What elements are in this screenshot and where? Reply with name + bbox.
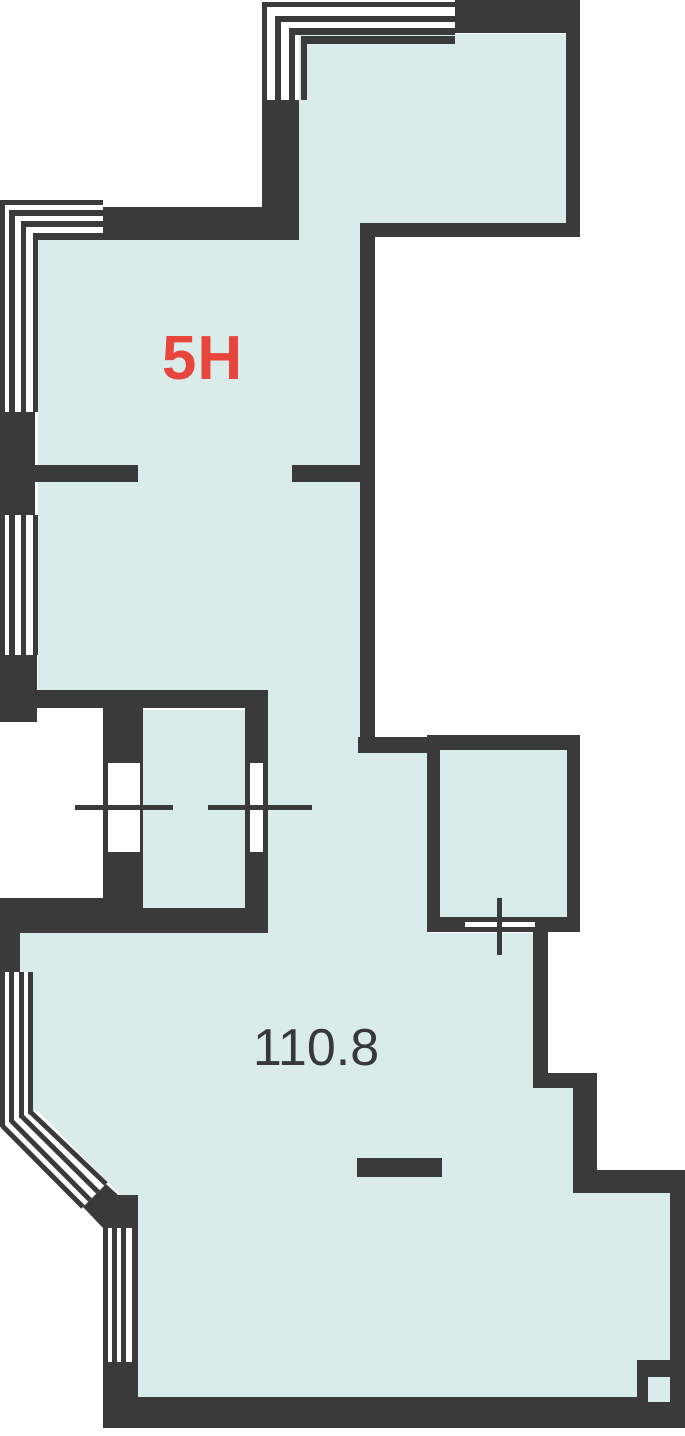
window-line — [275, 16, 455, 22]
window-line — [112, 1225, 117, 1362]
wall-top-room-top — [455, 0, 580, 33]
main-room-floor-sliver — [20, 933, 38, 972]
window-left-middle — [0, 515, 38, 655]
window-line — [0, 515, 5, 655]
window-line — [33, 233, 38, 412]
wall-bottom-outer — [103, 1397, 685, 1428]
window-bottom-left — [103, 1225, 138, 1362]
axis-marker-icon — [497, 898, 502, 955]
wall-step1-vertical — [533, 932, 548, 1088]
wall-duct-left — [637, 1360, 648, 1403]
wall-stub-right — [292, 465, 362, 482]
window-line — [262, 2, 455, 7]
window-line — [301, 36, 455, 44]
wall-left-pier-2 — [0, 655, 37, 722]
axis-marker-icon — [75, 805, 173, 810]
axis-marker-icon — [208, 805, 312, 810]
window-line — [33, 515, 38, 655]
window-line — [33, 233, 103, 240]
unit-number-label: 5H — [140, 318, 265, 398]
wall-stub-left — [30, 465, 138, 482]
window-line — [0, 200, 103, 205]
floor-plan: 5H 110.8 — [0, 0, 685, 1436]
main-room-floor-step1 — [533, 1088, 573, 1397]
bay-window-vertical — [0, 972, 33, 1127]
area-value-label: 110.8 — [236, 1014, 396, 1082]
window-line — [21, 221, 103, 227]
window-line — [9, 210, 103, 216]
wall-5h-top — [103, 207, 297, 240]
window-line — [275, 16, 281, 100]
room-top-floor — [299, 34, 566, 223]
wall-right-outer — [670, 1193, 685, 1428]
window-line — [9, 972, 14, 1122]
window-line — [103, 1225, 108, 1362]
passage-floor-2 — [362, 753, 428, 933]
main-room-floor-left — [33, 933, 138, 1111]
wall-corridor-turn — [358, 737, 428, 753]
window-line — [262, 2, 267, 100]
wall-5h-bottom — [33, 690, 268, 708]
right-room-floor — [440, 750, 567, 917]
passage-floor — [268, 700, 362, 933]
window-line — [9, 515, 15, 655]
wall-top-room-bottom — [362, 223, 580, 237]
window-line — [19, 972, 24, 1118]
wall-island-stub — [357, 1158, 442, 1177]
window-line — [121, 1225, 126, 1362]
floor-plan-drawing — [0, 0, 685, 1436]
window-line — [301, 44, 307, 100]
window-line — [132, 1225, 138, 1362]
window-line — [9, 210, 15, 412]
wall-niche-bottom — [0, 898, 143, 933]
window-line — [289, 28, 295, 100]
wall-right-room-right — [567, 735, 580, 932]
wall-corridor-right — [360, 223, 375, 753]
duct-niche-floor — [648, 1377, 670, 1402]
wall-left-bottom-pier — [103, 1362, 138, 1428]
wall-right-room-left — [427, 735, 440, 932]
wall-step2-horizontal — [573, 1170, 685, 1193]
window-line — [21, 221, 26, 412]
window-line — [21, 515, 26, 655]
window-line — [28, 972, 33, 1114]
wall-top-room-right — [566, 0, 580, 237]
wall-small-room-bottom — [143, 908, 268, 933]
wall-right-room-top — [427, 735, 580, 750]
wall-left-pier-1 — [0, 412, 35, 515]
wall-left-pier-3 — [0, 933, 20, 972]
wall-step1-horizontal — [533, 1073, 597, 1088]
main-room-floor — [138, 933, 533, 1397]
window-line — [0, 972, 5, 1127]
window-line — [289, 28, 455, 35]
window-line — [0, 200, 5, 412]
